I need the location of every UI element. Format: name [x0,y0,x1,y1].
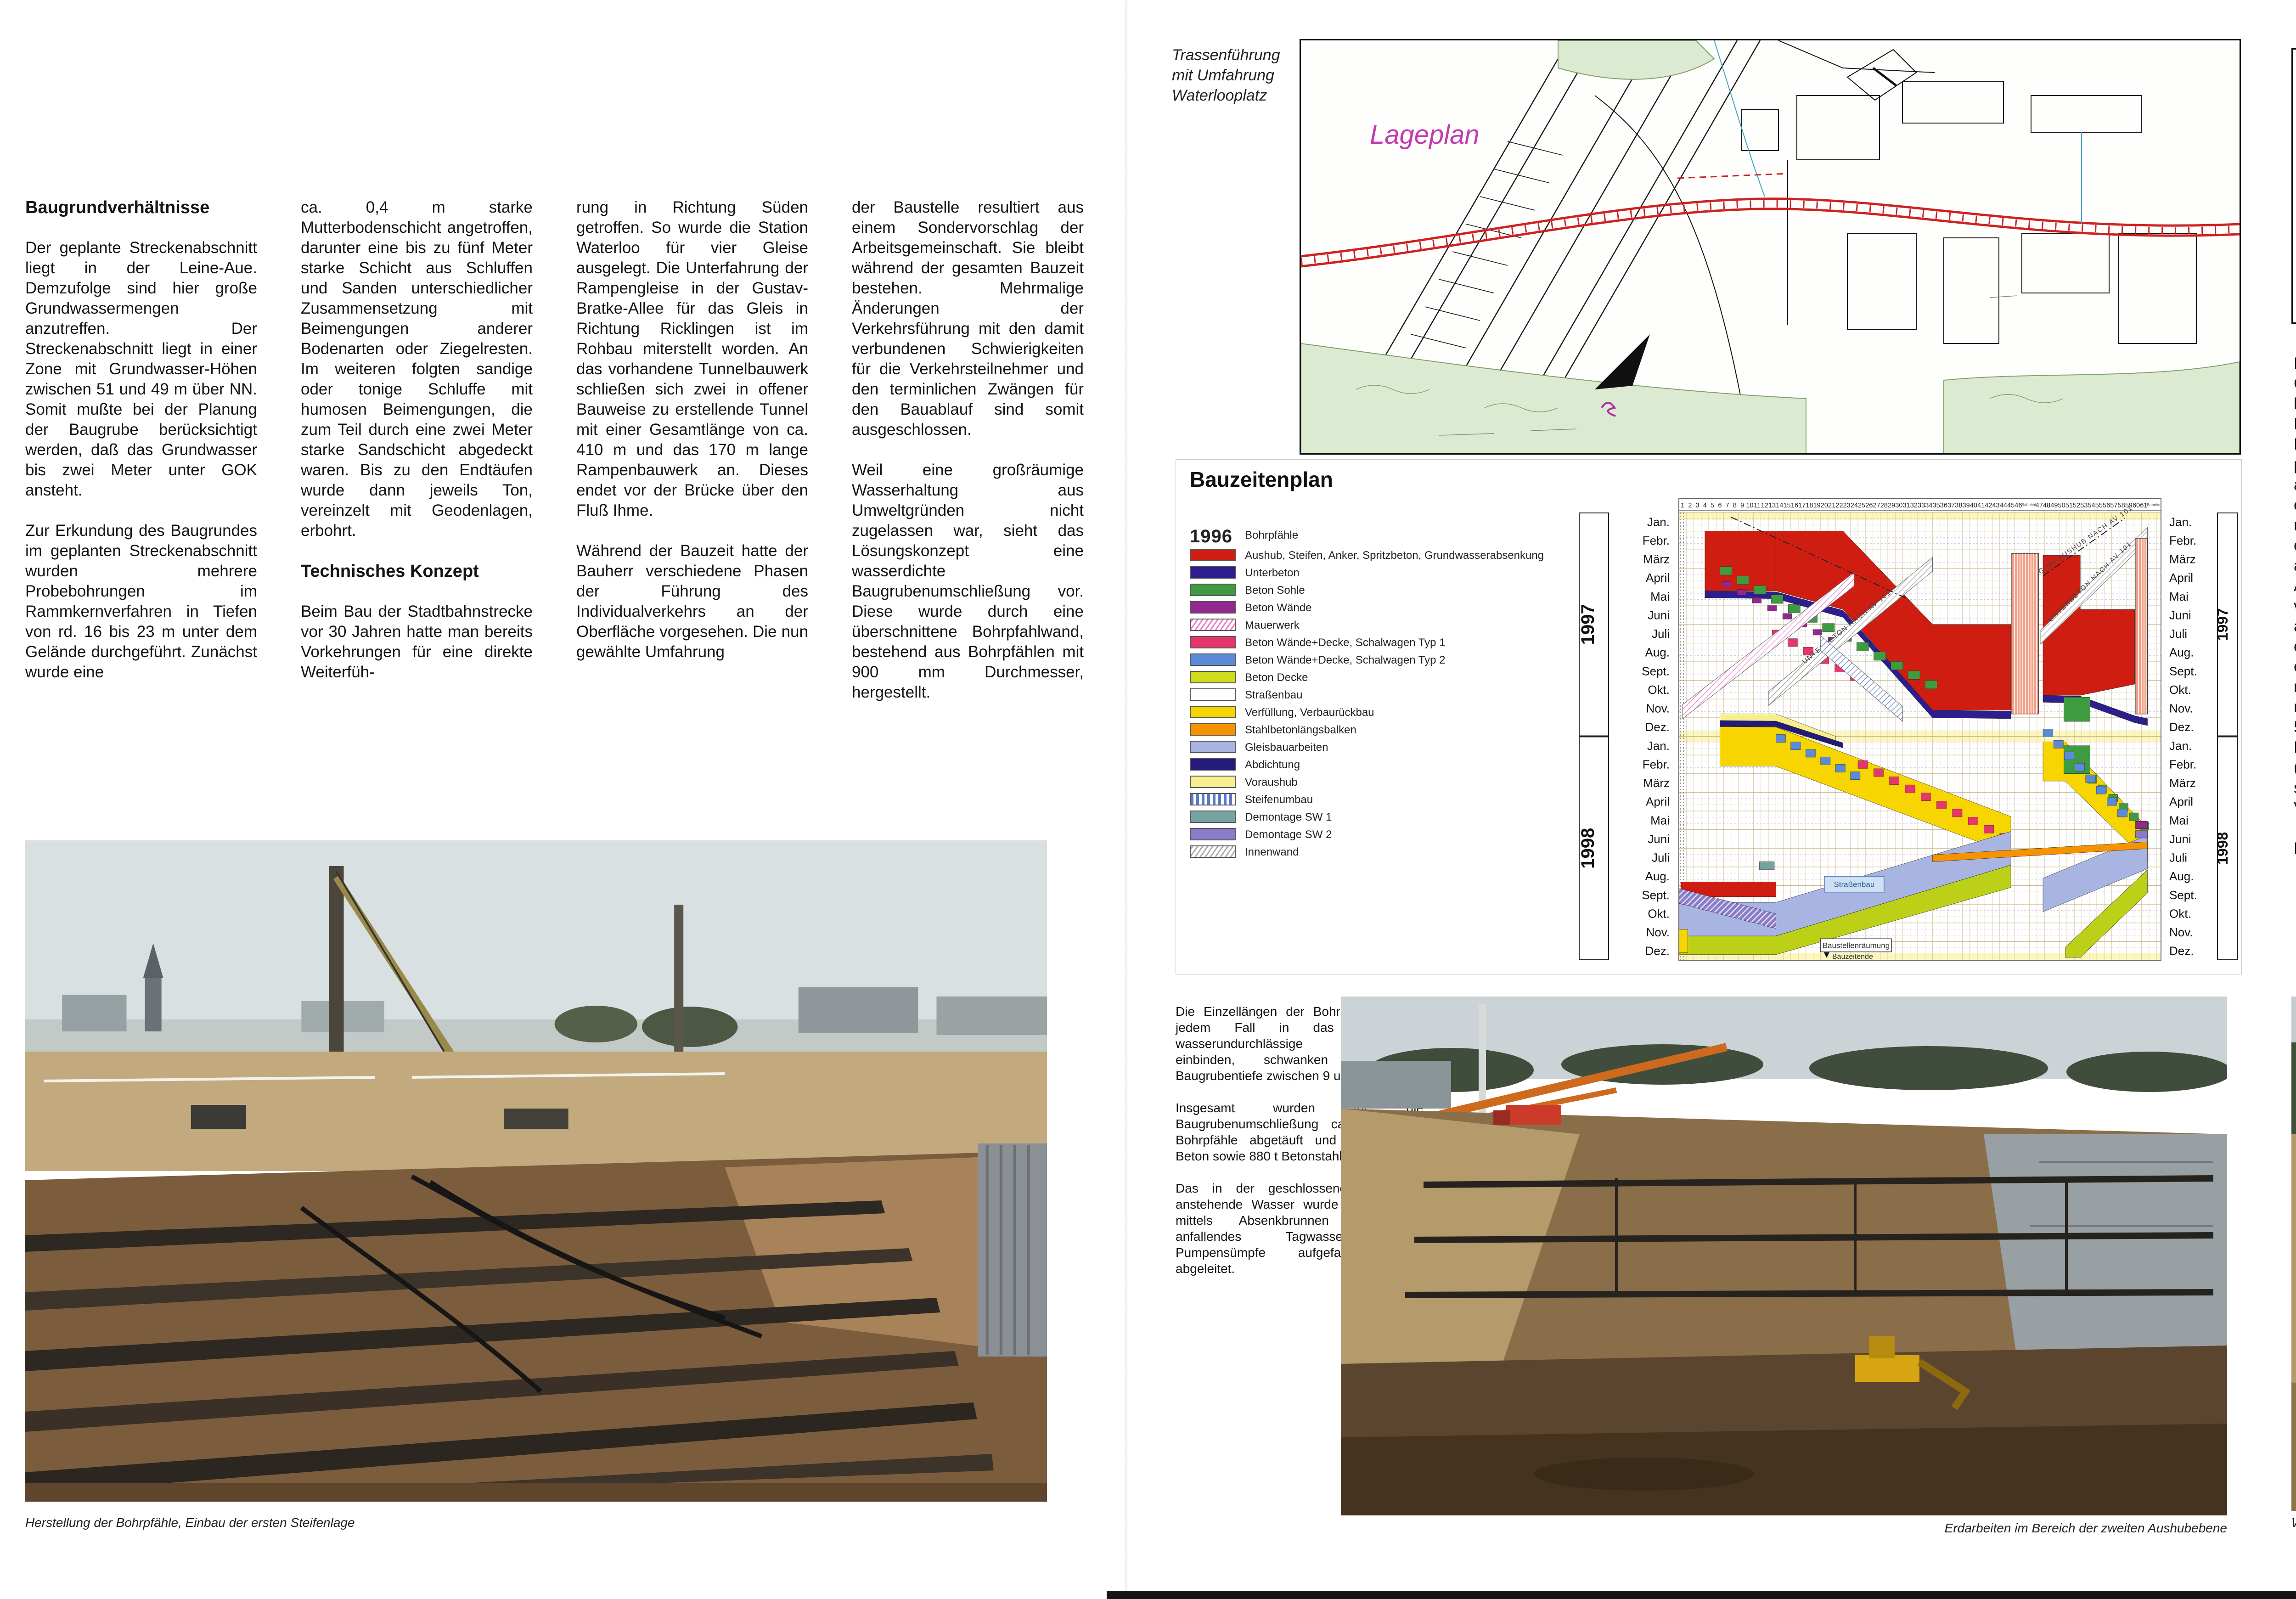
legend-label: Demontage SW 1 [1245,811,1332,823]
legend-year: 1996 [1190,529,1236,544]
svg-text:Nov.: Nov. [1646,925,1670,939]
svg-text:59: 59 [2125,502,2133,509]
legend-swatch [1190,828,1236,840]
legend-item: Beton Decke [1190,671,1571,684]
svg-text:Sept.: Sept. [2169,888,2197,902]
svg-text:1998: 1998 [2214,832,2231,865]
svg-text:34: 34 [1925,502,1932,509]
svg-text:April: April [2169,795,2193,809]
svg-text:Juli: Juli [1652,851,1670,865]
legend-swatch [1190,845,1236,858]
legend-item: Abdichtung [1190,758,1571,771]
svg-text:Juli: Juli [1652,627,1670,641]
photo-caption-right: Während der Aushubarbeiten wurde ein prä… [2291,1515,2296,1530]
svg-text:Okt.: Okt. [1648,906,1670,920]
svg-text:1: 1 [1681,502,1684,509]
legend-item: Beton Wände [1190,601,1571,614]
legend-label: Bohrpfähle [1245,529,1298,541]
svg-text:Nov.: Nov. [1646,702,1670,715]
svg-text:18: 18 [1806,502,1813,509]
photo-baumstamm-illustration [2291,997,2296,1511]
svg-text:1997: 1997 [2214,608,2231,641]
paragraph: rung in Richtung Süden getroffen. So wur… [576,197,808,521]
svg-text:1998: 1998 [1578,828,1598,869]
right-column-1: Nach erfolgter Absenkung des Grundwasser… [2294,354,2296,879]
left-column-2: ca. 0,4 m starke Mutterbodenschicht ange… [301,197,533,703]
section-heading-baugrundverhaeltnisse: Baugrundverhältnisse [25,197,257,218]
svg-text:Nov.: Nov. [2169,925,2193,939]
legend-item: Mauerwerk [1190,619,1571,631]
legend-swatch [1190,793,1236,805]
legend-label: Straßenbau [1245,688,1302,701]
svg-text:21: 21 [1828,502,1835,509]
legend-swatch [1190,584,1236,596]
legend-item: Verfüllung, Verbaurückbau [1190,706,1571,719]
svg-text:Aug.: Aug. [2169,869,2194,883]
svg-text:März: März [2169,776,2196,790]
svg-text:Mai: Mai [2169,813,2189,827]
legend-swatch [1190,741,1236,753]
svg-text:16: 16 [1791,502,1798,509]
legend-item: Gleisbauarbeiten [1190,741,1571,754]
svg-text:2: 2 [1688,502,1692,509]
legend-label: Unterbeton [1245,566,1300,579]
svg-text:37: 37 [1947,502,1955,509]
page-edge-strip [1107,1591,2296,1599]
svg-text:49: 49 [2050,502,2058,509]
legend-item: Beton Wände+Decke, Schalwagen Typ 1 [1190,636,1571,649]
legend-label: Beton Wände+Decke, Schalwagen Typ 1 [1245,636,1446,649]
legend-label: Voraushub [1245,776,1298,788]
legend-item: Beton Wände+Decke, Schalwagen Typ 2 [1190,653,1571,666]
legend-label: Aushub, Steifen, Anker, Spritzbeton, Gru… [1245,549,1544,562]
page-fold [1124,0,1128,1599]
photo-caption-left: Herstellung der Bohrpfähle, Einbau der e… [25,1515,355,1530]
svg-text:Okt.: Okt. [2169,683,2191,697]
photo-baumstamm [2291,997,2296,1511]
svg-text:46: 46 [2015,502,2022,509]
svg-text:Aug.: Aug. [2169,646,2194,659]
svg-text:26: 26 [1865,502,1873,509]
legend-swatch [1190,723,1236,736]
svg-text:Febr.: Febr. [1643,757,1670,771]
legend-swatch [1190,706,1236,718]
svg-text:Bahnhof: Bahnhof [2147,502,2161,507]
svg-text:Febr.: Febr. [1643,534,1670,547]
svg-text:56: 56 [2103,502,2110,509]
svg-text:April: April [1646,571,1670,585]
svg-text:April: April [2169,571,2193,585]
legend-label: Steifenumbau [1245,793,1313,806]
svg-text:Febr.: Febr. [2169,534,2196,547]
legend-swatch [1190,671,1236,683]
svg-text:Dez.: Dez. [1645,720,1670,734]
svg-text:Dez.: Dez. [2169,944,2194,958]
svg-text:24: 24 [1851,502,1858,509]
legend-swatch [1190,636,1236,648]
svg-text:25: 25 [1858,502,1865,509]
svg-text:30: 30 [1895,502,1902,509]
photo-bohrpfahl-illustration [25,840,1047,1502]
svg-text:Mai: Mai [1650,813,1670,827]
map-label: Trassenführung mit Umfahrung Waterloopla… [1172,45,1319,106]
svg-text:48: 48 [2043,502,2050,509]
svg-text:Jan.: Jan. [2169,515,2192,529]
paragraph: Zur Erkundung des Baugrundes im geplante… [25,521,257,682]
svg-text:Febr.: Febr. [2169,757,2196,771]
left-column-4: der Baustelle resultiert aus einem Sonde… [852,197,1084,723]
bauzeitenplan-legend: 1996BohrpfähleAushub, Steifen, Anker, Sp… [1190,529,1571,863]
legend-item: Innenwand [1190,845,1571,858]
svg-text:März: März [1643,776,1670,790]
svg-text:29: 29 [1888,502,1895,509]
svg-text:Bahnhof: Bahnhof [2021,502,2036,507]
legend-item: Steifenumbau [1190,793,1571,806]
paragraph: Weil eine großräumige Wasserhaltung aus … [852,460,1084,703]
paragraph: Der geplante Streckenabschnitt liegt in … [25,238,257,501]
legend-swatch [1190,776,1236,788]
svg-text:9: 9 [1740,502,1744,509]
legend-label: Beton Wände [1245,601,1311,614]
legend-item: Straßenbau [1190,688,1571,701]
svg-text:45: 45 [2007,502,2015,509]
svg-text:33: 33 [1918,502,1925,509]
bauzeitenplan-title: Bauzeitenplan [1190,467,1333,492]
paragraph: Während der Bauzeit hatte der Bauherr ve… [576,541,808,662]
photo-bohrpfahl-baustelle [25,840,1047,1502]
map-label-line1: Trassenführung [1172,45,1319,65]
site-plan-map: Lageplan [1300,39,2241,455]
svg-text:23: 23 [1843,502,1851,509]
svg-text:32: 32 [1910,502,1918,509]
svg-text:Dez.: Dez. [1645,944,1670,958]
svg-text:4: 4 [1703,502,1707,509]
svg-text:Straßenbau: Straßenbau [1834,880,1874,889]
legend-label: Mauerwerk [1245,619,1300,631]
legend-swatch [1190,688,1236,701]
svg-text:3: 3 [1696,502,1699,509]
svg-text:Nov.: Nov. [2169,702,2193,715]
gantt-chart: UNTERBETON NACH AV 101UNTERBETON NACH AV… [1576,460,2241,974]
legend-item: Voraushub [1190,776,1571,788]
svg-text:Juli: Juli [2169,851,2187,865]
svg-text:März: März [1643,552,1670,566]
legend-swatch [1190,566,1236,579]
svg-text:1997: 1997 [1578,604,1598,645]
svg-text:Juni: Juni [1648,608,1670,622]
svg-text:57: 57 [2110,502,2117,509]
svg-text:43: 43 [1992,502,2000,509]
svg-text:13: 13 [1768,502,1776,509]
paragraph: Nach erfolgter Absenkung des Grundwasser… [2294,354,2296,818]
legend-item: Beton Sohle [1190,584,1571,597]
legend-label: Innenwand [1245,845,1299,858]
paragraph: Die durch die äußeren Bohr- [2294,839,2296,859]
map-lageplan-label: Lageplan [1370,120,1480,150]
legend-label: Beton Sohle [1245,584,1305,597]
svg-text:55: 55 [2095,502,2103,509]
svg-text:27: 27 [1873,502,1880,509]
legend-label: Beton Decke [1245,671,1308,684]
paragraph: Beim Bau der Stadtbahnstrecke vor 30 Jah… [301,602,533,682]
svg-text:19: 19 [1813,502,1821,509]
svg-text:Mai: Mai [1650,590,1670,603]
svg-text:54: 54 [2088,502,2095,509]
left-column-3: rung in Richtung Süden getroffen. So wur… [576,197,808,682]
svg-text:Aug.: Aug. [1645,869,1670,883]
svg-text:20: 20 [1821,502,1828,509]
svg-text:11: 11 [1754,502,1761,509]
map-label-line2: mit Umfahrung [1172,65,1319,85]
svg-text:10: 10 [1746,502,1753,509]
map-label-line3: Waterlooplatz [1172,85,1319,106]
legend-swatch [1190,549,1236,561]
svg-text:März: März [2169,552,2196,566]
svg-text:Baustellenräumung: Baustellenräumung [1823,941,1890,950]
legend-item: Stahlbetonlängsbalken [1190,723,1571,736]
svg-text:15: 15 [1784,502,1791,509]
svg-text:60: 60 [2133,502,2140,509]
svg-text:Jan.: Jan. [1647,515,1670,529]
legend-label: Demontage SW 2 [1245,828,1332,841]
svg-text:35: 35 [1933,502,1940,509]
svg-text:Okt.: Okt. [2169,906,2191,920]
svg-text:14: 14 [1776,502,1783,509]
svg-text:Bauzeitende: Bauzeitende [1832,953,1873,961]
legend-swatch [1190,601,1236,614]
svg-text:51: 51 [2065,502,2073,509]
svg-text:Okt.: Okt. [1648,683,1670,697]
svg-text:Juni: Juni [2169,608,2191,622]
svg-text:Sept.: Sept. [2169,664,2197,678]
svg-text:52: 52 [2073,502,2080,509]
legend-item: Demontage SW 1 [1190,811,1571,823]
svg-text:Jan.: Jan. [2169,739,2192,753]
svg-text:42: 42 [1985,502,1992,509]
photo-caption-center: Erdarbeiten im Bereich der zweiten Aushu… [1945,1521,2227,1536]
construction-sequence-diagram: Bohrpfähle Aushubebene 1.Steifenlage 2.S… [2291,48,2296,324]
svg-text:Juli: Juli [2169,627,2187,641]
svg-text:8: 8 [1733,502,1737,509]
svg-text:44: 44 [2000,502,2007,509]
legend-swatch [1190,653,1236,666]
legend-label: Gleisbauarbeiten [1245,741,1328,754]
svg-text:5: 5 [1711,502,1714,509]
svg-text:28: 28 [1880,502,1888,509]
lageplan-map-drawing: Lageplan [1301,40,2240,453]
svg-text:Sept.: Sept. [1642,888,1670,902]
svg-text:47: 47 [2036,502,2043,509]
paragraph: der Baustelle resultiert aus einem Sonde… [852,197,1084,440]
legend-label: Verfüllung, Verbaurückbau [1245,706,1374,719]
legend-swatch [1190,758,1236,771]
svg-text:41: 41 [1977,502,1985,509]
legend-label: Stahlbetonlängsbalken [1245,723,1356,736]
legend-swatch [1190,811,1236,823]
svg-text:50: 50 [2058,502,2065,509]
legend-item: Aushub, Steifen, Anker, Spritzbeton, Gru… [1190,549,1571,562]
svg-text:6: 6 [1718,502,1722,509]
svg-text:7: 7 [1726,502,1729,509]
svg-text:Juni: Juni [1648,832,1670,846]
sequence-diagram-drawing: Bohrpfähle Aushubebene 1.Steifenlage 2.S… [2293,50,2296,322]
svg-text:39: 39 [1963,502,1970,509]
svg-text:April: April [1646,795,1670,809]
paragraph: ca. 0,4 m starke Mutterbodenschicht ange… [301,197,533,541]
svg-text:58: 58 [2118,502,2125,509]
legend-swatch [1190,619,1236,631]
photo-baugrube [1341,997,2227,1515]
svg-text:Aug.: Aug. [1645,646,1670,659]
legend-item: 1996Bohrpfähle [1190,529,1571,544]
svg-text:40: 40 [1970,502,1977,509]
svg-text:53: 53 [2080,502,2088,509]
svg-text:Juni: Juni [2169,832,2191,846]
legend-label: Beton Wände+Decke, Schalwagen Typ 2 [1245,653,1446,666]
svg-text:Dez.: Dez. [2169,720,2194,734]
svg-text:Jan.: Jan. [1647,739,1670,753]
legend-item: Unterbeton [1190,566,1571,579]
svg-text:31: 31 [1903,502,1910,509]
svg-text:61: 61 [2140,502,2147,509]
left-column-1: Baugrundverhältnisse Der geplante Streck… [25,197,257,703]
svg-text:12: 12 [1761,502,1768,509]
photo-baugrube-illustration [1341,997,2227,1515]
svg-text:17: 17 [1798,502,1806,509]
brochure-spread: Baugrundverhältnisse Der geplante Streck… [0,0,2296,1599]
svg-text:Sept.: Sept. [1642,664,1670,678]
svg-text:36: 36 [1940,502,1947,509]
svg-text:38: 38 [1955,502,1962,509]
section-heading-technisches-konzept: Technisches Konzept [301,561,533,581]
svg-text:22: 22 [1835,502,1843,509]
legend-label: Abdichtung [1245,758,1300,771]
legend-item: Demontage SW 2 [1190,828,1571,841]
svg-text:Mai: Mai [2169,590,2189,603]
bauzeitenplan-panel: Bauzeitenplan 1996BohrpfähleAushub, Stei… [1176,459,2242,974]
